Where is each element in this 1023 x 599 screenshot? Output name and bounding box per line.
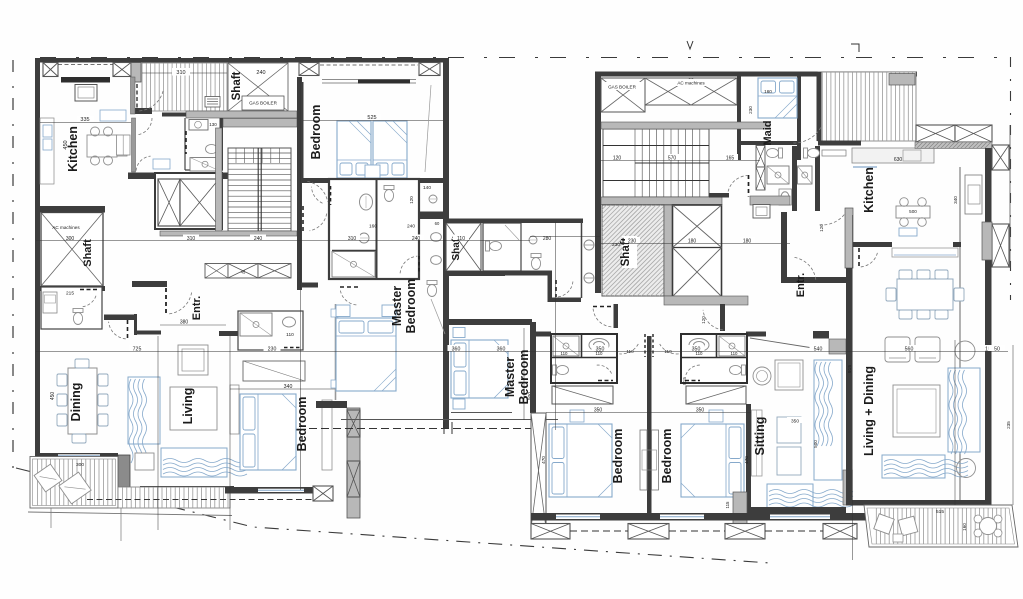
svg-text:120: 120 (613, 156, 622, 162)
svg-text:110: 110 (286, 332, 294, 338)
svg-text:230: 230 (612, 242, 620, 248)
svg-text:380: 380 (180, 320, 189, 326)
svg-text:300: 300 (76, 462, 84, 468)
svg-text:350: 350 (791, 419, 799, 425)
svg-text:110: 110 (457, 236, 465, 242)
svg-text:360: 360 (452, 347, 461, 353)
svg-text:Dining: Dining (69, 383, 83, 422)
svg-text:515: 515 (936, 509, 944, 515)
svg-text:240: 240 (412, 236, 421, 242)
svg-text:45: 45 (241, 270, 246, 275)
svg-text:Living + Dining: Living + Dining (862, 366, 876, 456)
svg-text:310: 310 (176, 70, 185, 76)
svg-text:230: 230 (268, 347, 277, 353)
svg-text:Entr.: Entr. (795, 273, 807, 297)
svg-text:Bedroom: Bedroom (309, 105, 323, 160)
svg-text:Bedroom: Bedroom (295, 397, 309, 452)
svg-text:Shaft: Shaft (231, 71, 243, 100)
svg-text:350: 350 (692, 347, 701, 353)
svg-text:Master: Master (503, 357, 517, 397)
svg-text:350: 350 (596, 347, 605, 353)
svg-text:240: 240 (256, 70, 265, 76)
svg-text:470: 470 (541, 456, 546, 464)
svg-text:115: 115 (725, 501, 730, 509)
svg-text:GAS BOILER: GAS BOILER (249, 101, 278, 106)
svg-text:570: 570 (668, 156, 677, 162)
svg-text:470: 470 (744, 456, 749, 464)
svg-text:Bedroom: Bedroom (517, 350, 531, 405)
svg-text:Bedroom: Bedroom (660, 429, 674, 484)
svg-text:300: 300 (66, 236, 75, 242)
svg-text:120: 120 (819, 224, 824, 232)
svg-text:130: 130 (209, 122, 217, 127)
svg-text:GAS BOILER: GAS BOILER (608, 85, 637, 90)
svg-text:240: 240 (254, 236, 263, 242)
svg-text:160: 160 (369, 224, 377, 230)
svg-text:240: 240 (407, 224, 415, 230)
svg-text:AC machines: AC machines (52, 225, 80, 230)
svg-text:215: 215 (66, 291, 74, 297)
svg-text:120: 120 (409, 196, 414, 204)
svg-text:450: 450 (50, 392, 56, 401)
svg-text:Kitchen: Kitchen (66, 126, 80, 172)
svg-text:915: 915 (682, 377, 688, 385)
svg-text:540: 540 (814, 347, 823, 353)
svg-text:120: 120 (701, 316, 706, 324)
svg-text:160: 160 (764, 89, 772, 94)
svg-text:Kitchen: Kitchen (862, 167, 876, 213)
svg-text:340: 340 (953, 196, 958, 204)
svg-text:140: 140 (423, 185, 431, 191)
svg-text:Maid: Maid (762, 120, 774, 145)
svg-text:630: 630 (894, 157, 903, 163)
svg-text:350: 350 (696, 408, 705, 414)
svg-text:230: 230 (628, 239, 637, 245)
svg-text:Shaft: Shaft (82, 239, 94, 267)
svg-text:310: 310 (187, 236, 196, 242)
svg-text:180: 180 (688, 239, 697, 245)
svg-text:310: 310 (348, 236, 357, 242)
svg-text:Master: Master (390, 286, 404, 326)
svg-text:50: 50 (994, 347, 1000, 353)
svg-text:160: 160 (962, 523, 967, 531)
svg-text:180: 180 (743, 239, 752, 245)
svg-text:350: 350 (594, 408, 603, 414)
svg-text:360: 360 (497, 347, 506, 353)
svg-text:335: 335 (80, 117, 89, 123)
svg-text:Living: Living (181, 388, 195, 425)
svg-text:AC machines: AC machines (677, 81, 705, 86)
svg-text:235: 235 (1006, 421, 1011, 429)
svg-text:725: 725 (133, 347, 142, 353)
svg-text:500: 500 (813, 440, 818, 448)
svg-text:560: 560 (905, 347, 914, 353)
svg-text:165: 165 (726, 156, 735, 162)
svg-text:Entr.: Entr. (191, 296, 203, 320)
svg-text:Bedroom: Bedroom (611, 429, 625, 484)
svg-text:60: 60 (435, 221, 440, 226)
svg-text:Bedroom: Bedroom (404, 279, 418, 334)
svg-text:230: 230 (748, 106, 753, 114)
svg-text:500: 500 (909, 209, 917, 214)
svg-text:340: 340 (284, 384, 293, 390)
svg-text:Sitting: Sitting (753, 417, 767, 456)
svg-text:915: 915 (847, 365, 853, 373)
svg-text:525: 525 (367, 115, 376, 121)
